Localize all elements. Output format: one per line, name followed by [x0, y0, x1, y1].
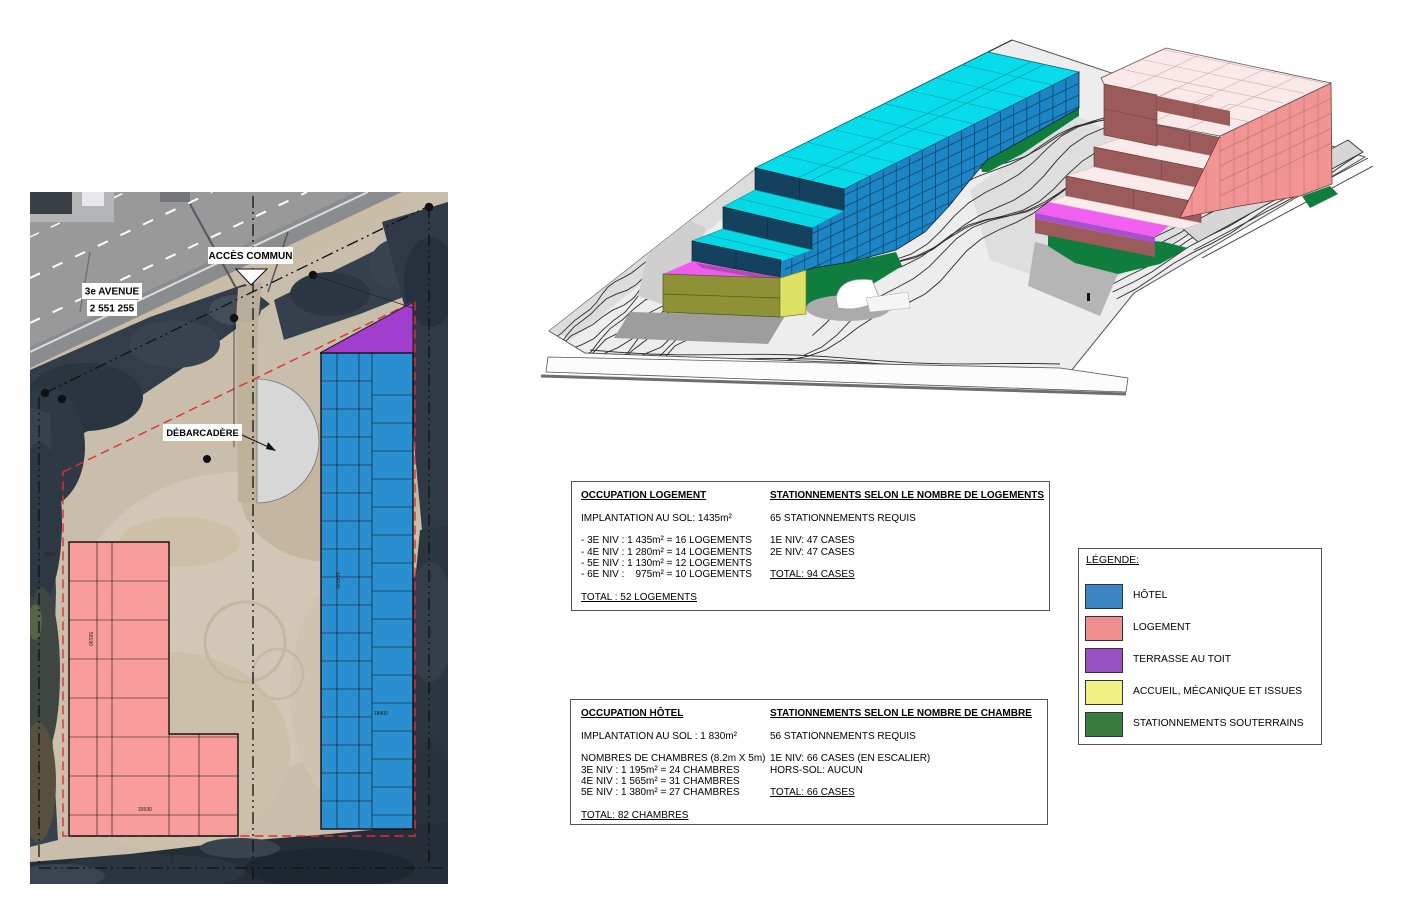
svg-text:ACCÈS COMMUN: ACCÈS COMMUN: [209, 249, 293, 262]
svg-text:18400: 18400: [374, 711, 388, 717]
svg-text:2 551 255: 2 551 255: [90, 304, 135, 315]
svg-text:33530: 33530: [138, 807, 152, 813]
svg-text:104040: 104040: [334, 572, 340, 589]
svg-text:58190: 58190: [87, 632, 93, 646]
svg-text:3000: 3000: [44, 552, 55, 558]
svg-text:6000: 6000: [168, 852, 174, 863]
svg-text:3e AVENUE: 3e AVENUE: [85, 287, 140, 298]
svg-text:DÉBARCADÈRE: DÉBARCADÈRE: [166, 428, 238, 438]
